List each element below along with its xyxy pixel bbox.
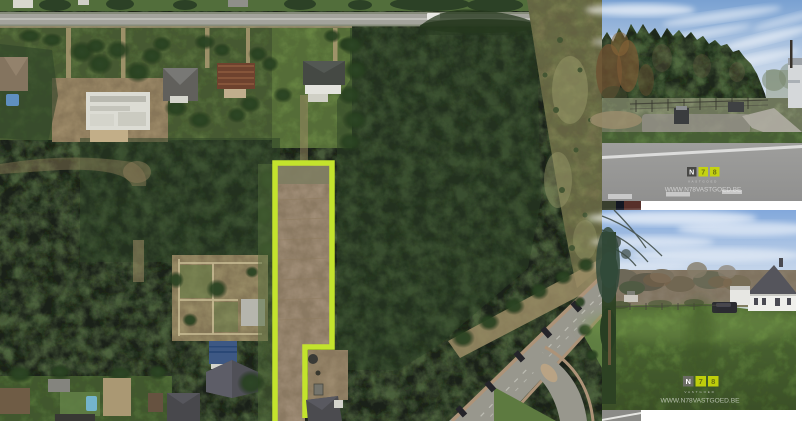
svg-text:N: N (685, 377, 690, 386)
svg-text:VASTGOED: VASTGOED (688, 180, 718, 184)
svg-text:VASTGOED: VASTGOED (684, 390, 715, 394)
svg-text:WWW.N78VASTGOED.BE: WWW.N78VASTGOED.BE (665, 187, 742, 194)
svg-text:N: N (689, 170, 694, 177)
svg-text:8: 8 (711, 377, 715, 386)
svg-text:WWW.N78VASTGOED.BE: WWW.N78VASTGOED.BE (660, 398, 740, 405)
svg-text:7: 7 (701, 170, 705, 177)
svg-text:7: 7 (699, 377, 703, 386)
svg-text:8: 8 (713, 170, 717, 177)
